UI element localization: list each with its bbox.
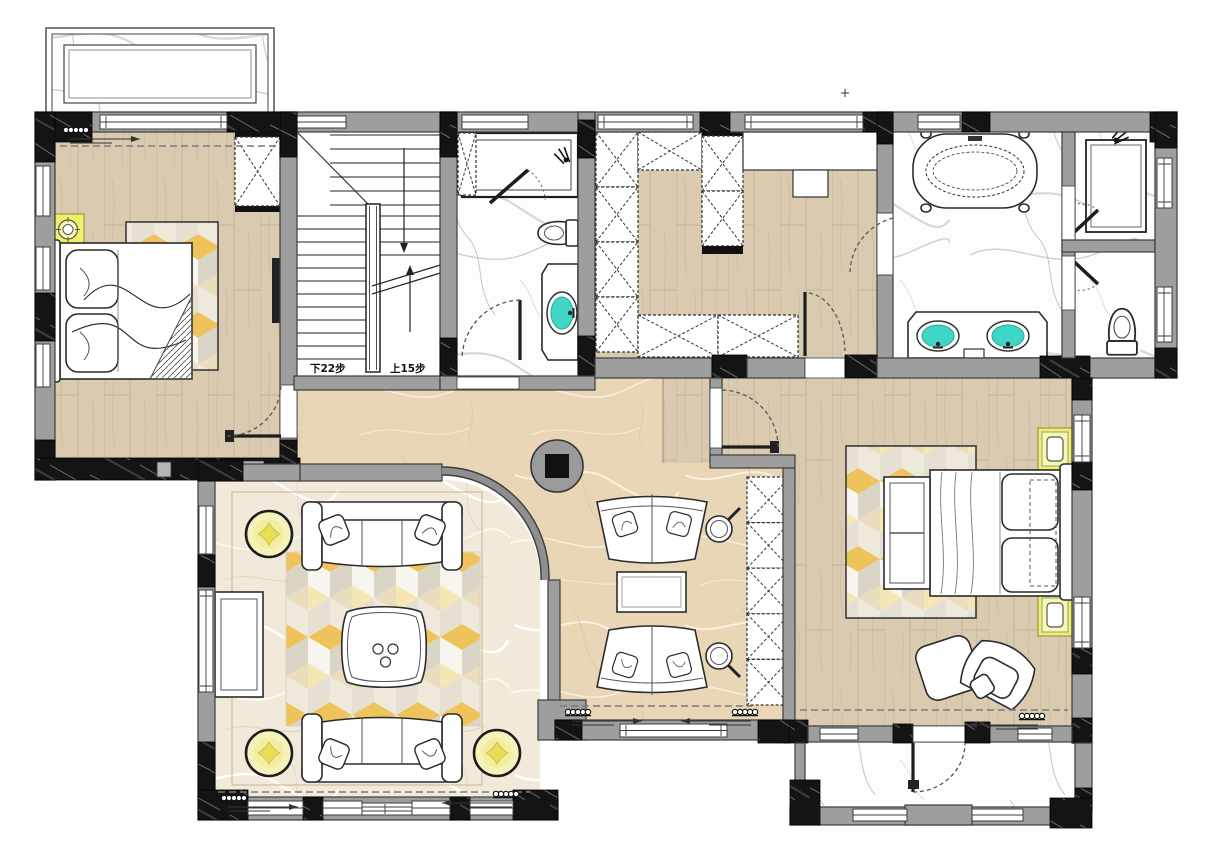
pouf xyxy=(246,511,292,557)
door-opening xyxy=(457,377,519,389)
stair-rail xyxy=(366,204,380,372)
sink-icon xyxy=(987,321,1029,351)
stairs-up-label: 上15步 xyxy=(390,362,426,375)
stairs-down-label: 下22步 xyxy=(310,362,346,375)
cabinet xyxy=(458,133,476,195)
sofa xyxy=(302,714,462,782)
window xyxy=(853,809,907,821)
tv xyxy=(272,258,280,323)
floor-plan-canvas: 下22步 上15步 xyxy=(0,0,1225,858)
window xyxy=(462,115,528,129)
door-opening xyxy=(710,388,722,448)
window xyxy=(323,801,362,815)
window xyxy=(36,247,50,290)
door-opening xyxy=(805,358,845,378)
window xyxy=(36,344,50,387)
window xyxy=(918,115,960,129)
bed-right xyxy=(930,464,1075,600)
tv-console xyxy=(215,592,263,697)
window xyxy=(1074,415,1090,462)
sink-icon xyxy=(917,321,959,351)
window xyxy=(598,115,693,129)
shower xyxy=(462,133,578,203)
window xyxy=(1157,287,1172,342)
window xyxy=(1018,728,1052,740)
window xyxy=(199,590,213,692)
sofa xyxy=(302,502,462,570)
pass-opening xyxy=(877,213,893,275)
toilet-icon xyxy=(538,220,578,246)
pouf xyxy=(474,730,520,776)
window xyxy=(745,115,863,129)
vanity xyxy=(542,264,578,360)
coffee-table xyxy=(617,572,686,612)
hall-wood-strip xyxy=(663,378,712,463)
center-table xyxy=(342,607,427,688)
sink-icon xyxy=(547,292,577,334)
column xyxy=(531,440,583,492)
door-opening xyxy=(280,385,297,438)
floor-plan: 下22步 上15步 xyxy=(0,0,1225,858)
french-door xyxy=(362,803,412,815)
window xyxy=(1074,597,1090,648)
wardrobe-column xyxy=(596,132,638,352)
toilet-icon xyxy=(1107,309,1137,355)
window xyxy=(100,115,227,129)
window xyxy=(972,809,1023,821)
pouf xyxy=(246,730,292,776)
window xyxy=(199,506,213,554)
door-opening xyxy=(913,726,965,742)
double-vanity xyxy=(908,312,1047,358)
bathtub xyxy=(913,130,1037,212)
wardrobe xyxy=(235,131,280,212)
shelf xyxy=(743,132,878,170)
window xyxy=(820,728,858,740)
window xyxy=(36,166,50,216)
bed-bench xyxy=(884,477,930,589)
wardrobe-bottom xyxy=(638,315,798,357)
settee xyxy=(597,625,707,695)
bed-left xyxy=(50,240,192,382)
window xyxy=(620,724,727,737)
reference-mark xyxy=(841,89,849,97)
window xyxy=(294,116,346,128)
balcony-floor xyxy=(800,743,1075,810)
shelf-notch xyxy=(793,170,828,197)
window xyxy=(1157,158,1172,208)
settee xyxy=(597,494,707,564)
